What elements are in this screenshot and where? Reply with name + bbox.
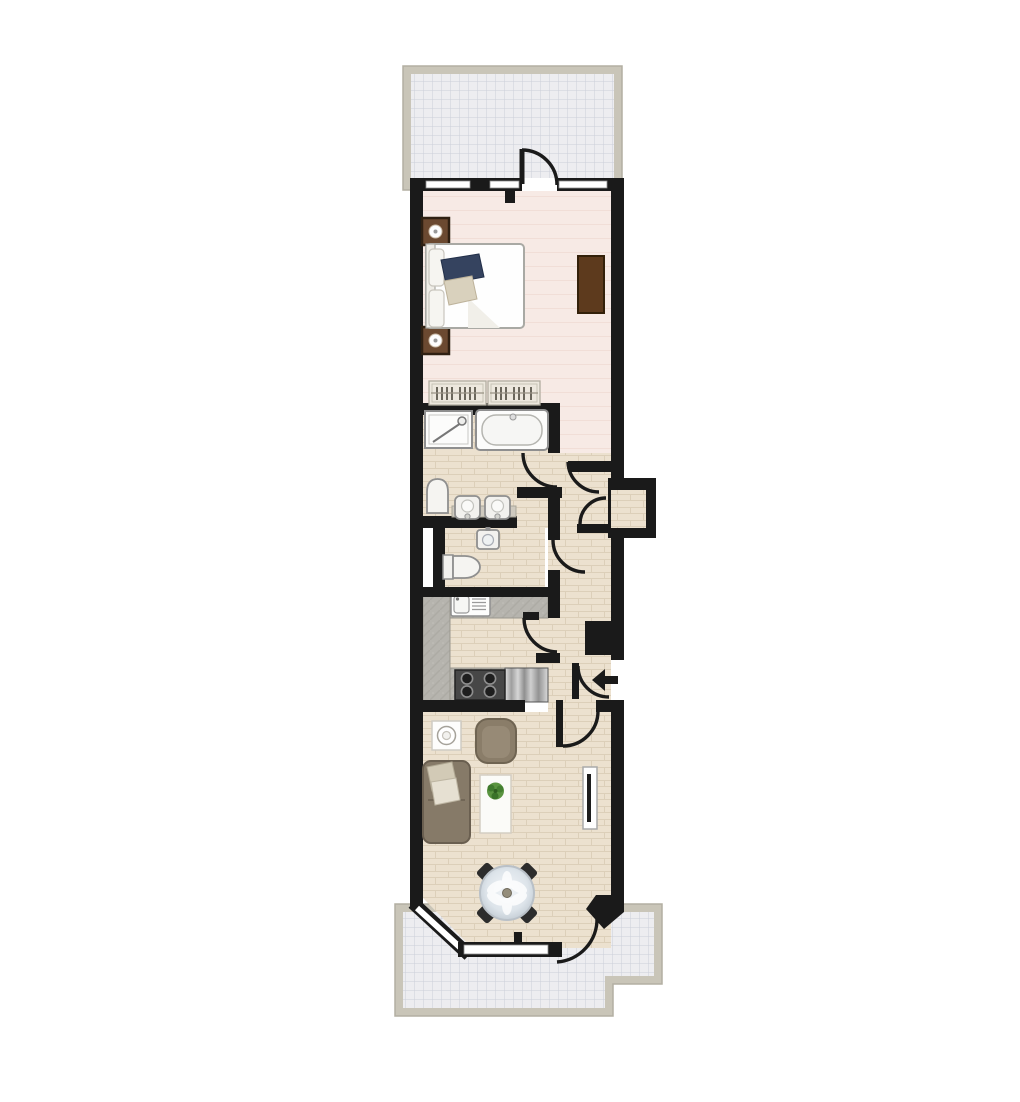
nightstand-bottom	[422, 327, 449, 354]
nightstand-top	[422, 218, 449, 245]
bay-window-front-glass	[464, 945, 548, 954]
wall-living-top	[423, 700, 525, 712]
coffee-table-with-plant	[480, 775, 511, 833]
wall-column	[585, 621, 624, 655]
terrace-top	[403, 66, 622, 190]
window-tick-bottom	[514, 932, 522, 943]
double-bed	[426, 244, 524, 328]
wall-bathtub-right	[548, 403, 560, 453]
sofa-with-cushions	[423, 761, 470, 843]
tv-unit	[583, 767, 597, 829]
toilet	[427, 479, 448, 513]
clothes-rail-left	[429, 381, 486, 405]
wall-right-upper	[611, 178, 624, 490]
wall-kitchen-right	[548, 592, 560, 618]
wall-kitchen-top	[423, 587, 560, 597]
clothes-rail-right	[488, 381, 540, 405]
wall-hall-upper	[568, 461, 611, 472]
sofa-cushion	[431, 778, 460, 805]
door-leaf-living	[556, 700, 563, 747]
wardrobe	[578, 256, 604, 313]
wall-kitchen-stub	[536, 653, 560, 663]
wall-right-lower	[611, 700, 624, 895]
pillow	[429, 290, 444, 327]
stainless-worktop	[505, 668, 548, 702]
wall-living-stub	[596, 700, 611, 712]
basin-left	[455, 496, 480, 519]
wall-vestibule-b	[548, 487, 560, 540]
pillow	[429, 249, 444, 286]
worktop-left	[423, 592, 450, 702]
shower-tray	[425, 411, 472, 448]
side-table-lamp	[432, 721, 461, 750]
window-tick-top	[505, 191, 515, 203]
window-top-left-a	[426, 181, 470, 188]
floor-plan-page	[0, 0, 1020, 1102]
wall-left	[410, 178, 423, 907]
four-ring-hob	[455, 670, 505, 700]
wc-basin	[477, 527, 499, 549]
bathtub	[476, 410, 548, 450]
door-leaf-cupboard	[577, 524, 610, 533]
dining-set	[476, 862, 539, 925]
terrace-door-opening	[522, 178, 557, 191]
wc-toilet	[443, 555, 480, 579]
window-top-right	[559, 181, 607, 188]
cupboard-floor	[611, 490, 646, 528]
basin-right	[485, 496, 510, 519]
terrace-top-paving	[411, 74, 614, 186]
floor-plan-drawing	[0, 0, 1020, 1102]
window-top-left-b	[490, 181, 519, 188]
armchair	[476, 719, 516, 763]
